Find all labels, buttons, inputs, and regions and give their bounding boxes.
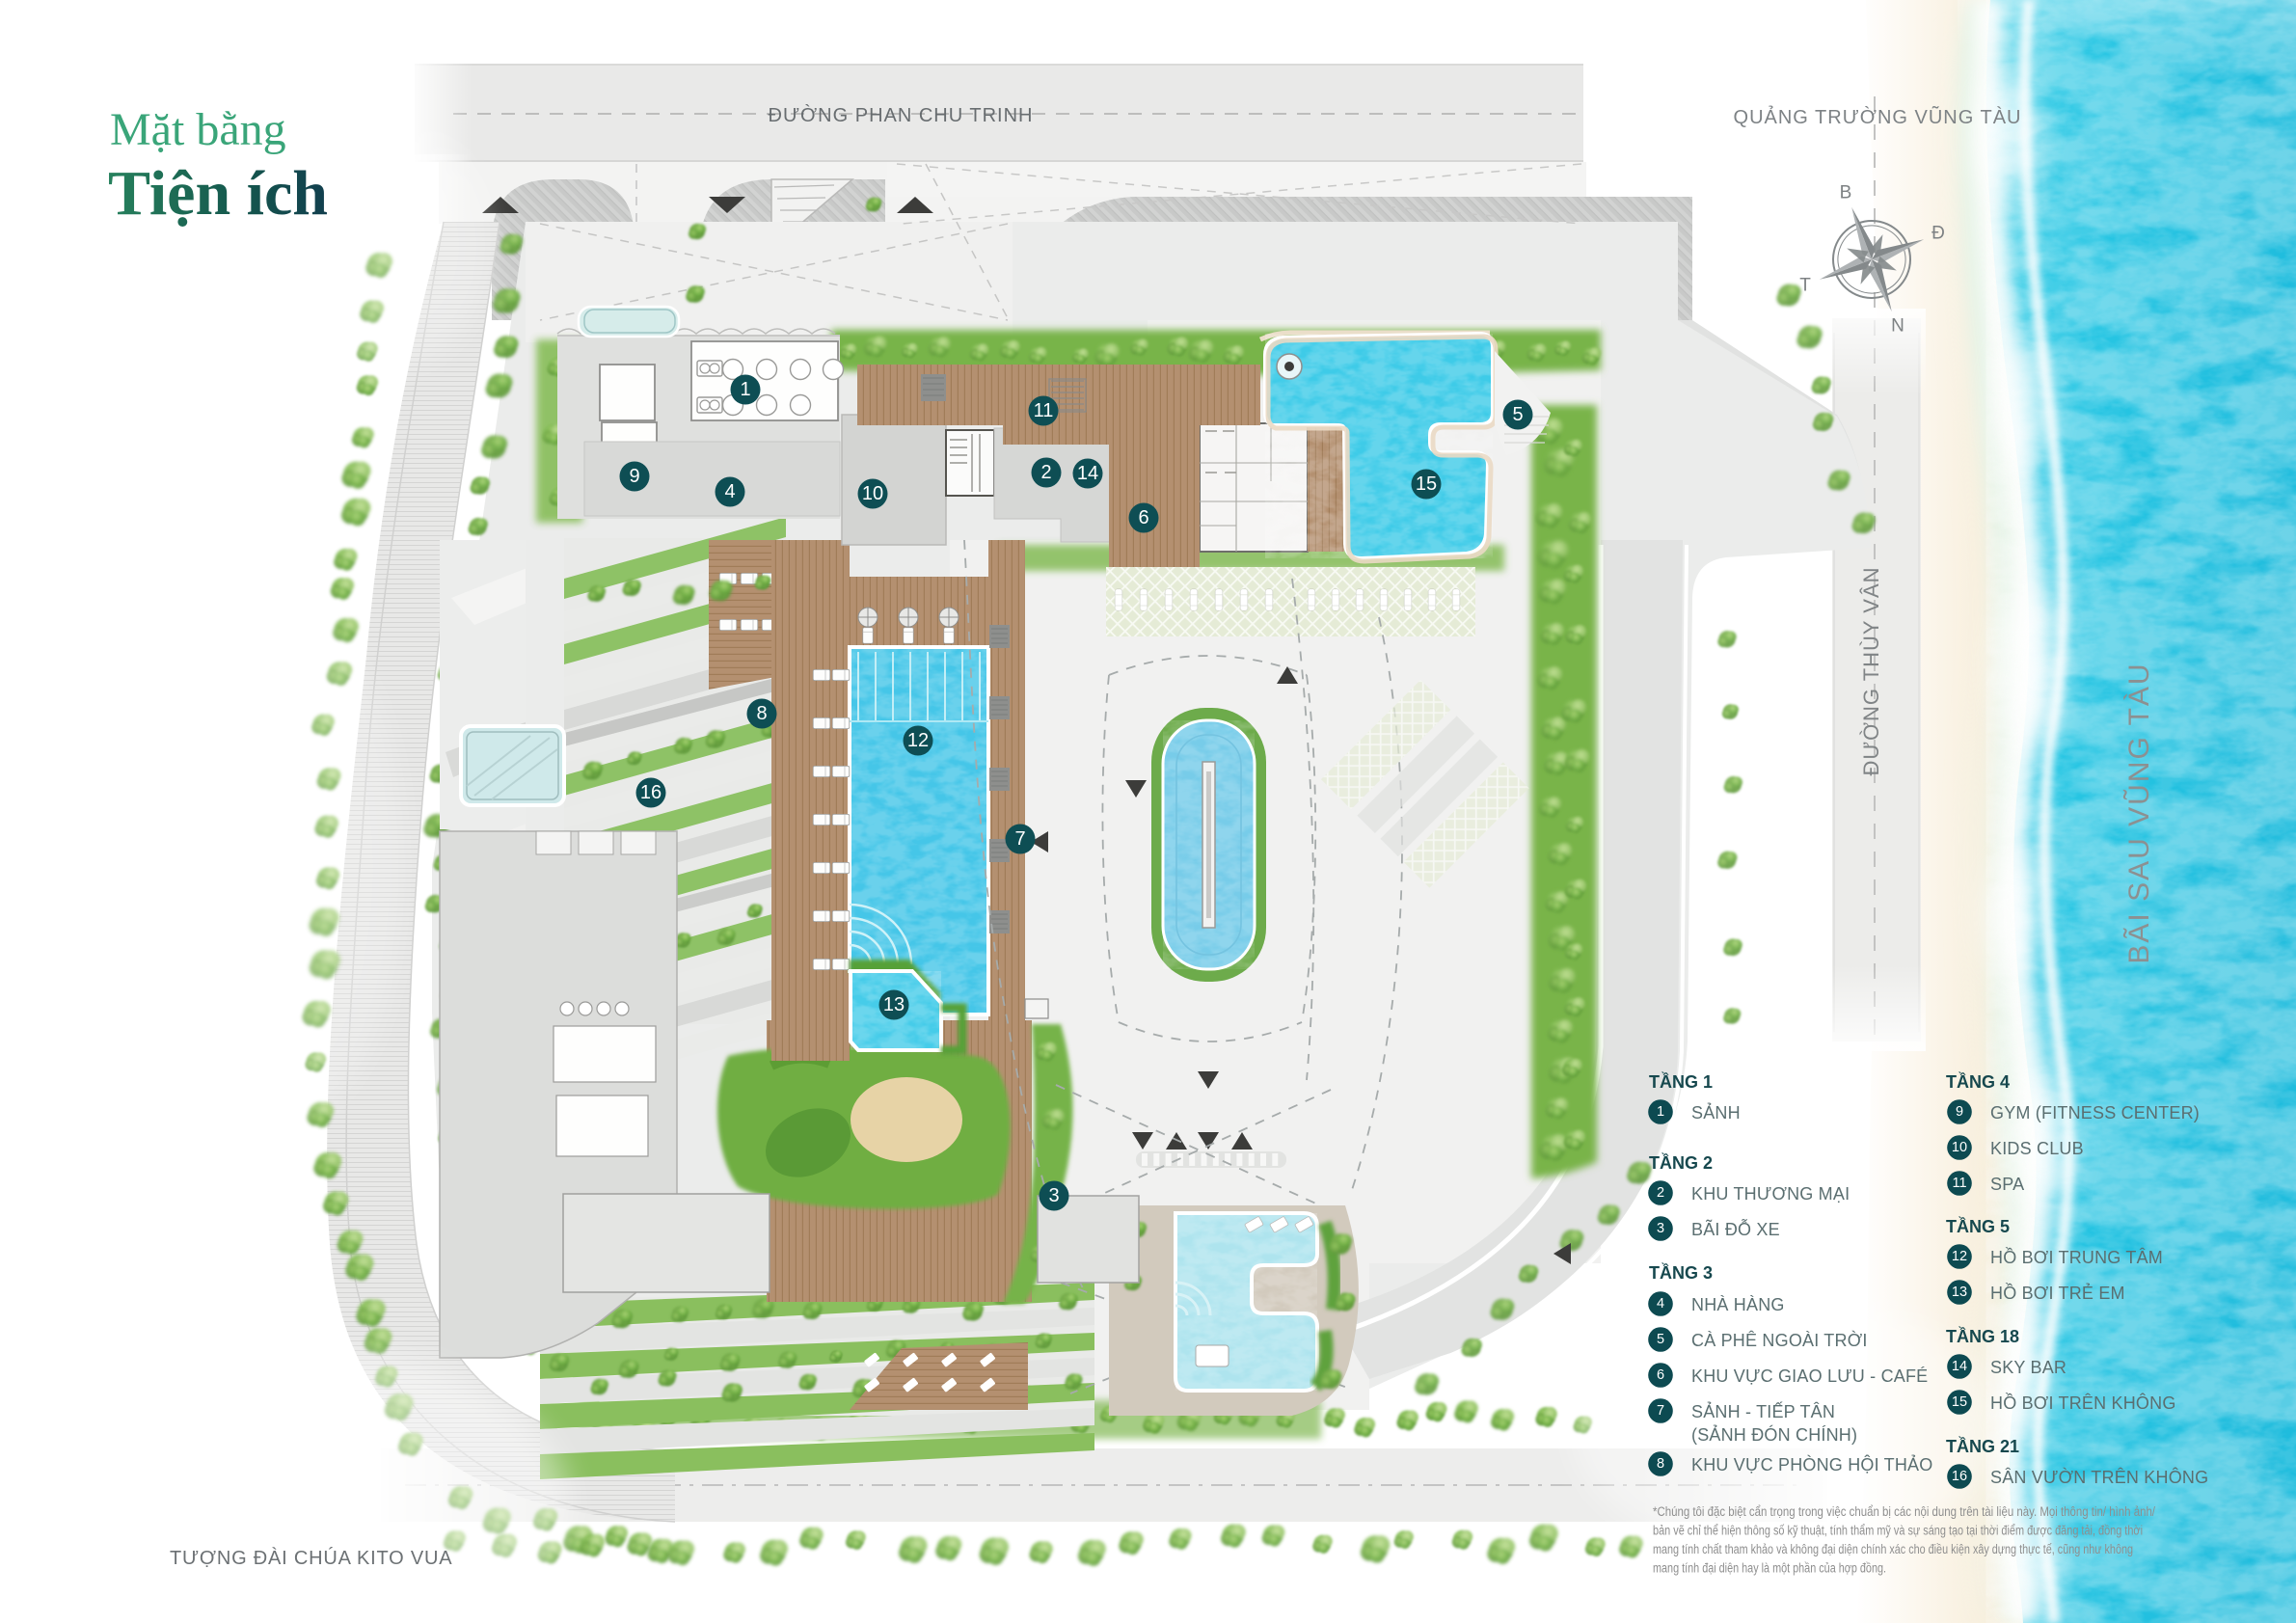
- svg-text:4: 4: [1657, 1296, 1664, 1312]
- svg-text:NHÀ HÀNG: NHÀ HÀNG: [1691, 1295, 1785, 1314]
- svg-text:CÀ PHÊ NGOÀI TRỜI: CÀ PHÊ NGOÀI TRỜI: [1691, 1330, 1868, 1350]
- svg-text:Tiện ích: Tiện ích: [108, 158, 328, 229]
- svg-text:Mặt bằng: Mặt bằng: [110, 104, 286, 155]
- svg-text:1: 1: [740, 379, 750, 400]
- svg-text:HỒ BƠI TRUNG TÂM: HỒ BƠI TRUNG TÂM: [1990, 1247, 2163, 1267]
- svg-text:Đ: Đ: [1931, 224, 1945, 244]
- svg-text:SKY BAR: SKY BAR: [1990, 1358, 2066, 1377]
- svg-text:10: 10: [1952, 1140, 1967, 1155]
- svg-text:13: 13: [883, 994, 905, 1015]
- svg-text:14: 14: [1077, 463, 1098, 484]
- svg-text:7: 7: [1014, 828, 1025, 850]
- svg-text:SÂN VƯỜN TRÊN KHÔNG: SÂN VƯỜN TRÊN KHÔNG: [1990, 1467, 2208, 1487]
- svg-text:5: 5: [1657, 1332, 1664, 1347]
- svg-text:TẦNG 3: TẦNG 3: [1649, 1262, 1713, 1283]
- svg-text:SPA: SPA: [1990, 1175, 2024, 1194]
- svg-text:11: 11: [1034, 400, 1054, 421]
- svg-text:ĐƯỜNG PHAN CHU TRINH: ĐƯỜNG PHAN CHU TRINH: [769, 104, 1034, 126]
- svg-text:HỒ BƠI TRÊN KHÔNG: HỒ BƠI TRÊN KHÔNG: [1990, 1393, 2176, 1413]
- svg-text:7: 7: [1657, 1403, 1664, 1419]
- svg-text:8: 8: [756, 703, 767, 724]
- svg-text:SẢNH: SẢNH: [1691, 1102, 1741, 1123]
- svg-text:B: B: [1840, 183, 1852, 203]
- svg-text:13: 13: [1952, 1285, 1967, 1300]
- svg-text:bản vẽ chỉ thể hiện thông số k: bản vẽ chỉ thể hiện thông số kỹ thuật, t…: [1653, 1524, 2143, 1538]
- svg-text:KHU VỰC PHÒNG HỘI THẢO: KHU VỰC PHÒNG HỘI THẢO: [1691, 1454, 1932, 1474]
- svg-text:15: 15: [1952, 1394, 1967, 1410]
- svg-text:mang tính đại diện hay là một: mang tính đại diện hay là một phần của h…: [1653, 1561, 1886, 1576]
- svg-text:TẦNG 4: TẦNG 4: [1946, 1071, 2010, 1092]
- svg-text:16: 16: [1952, 1469, 1967, 1484]
- svg-text:GYM (FITNESS CENTER): GYM (FITNESS CENTER): [1990, 1103, 2200, 1123]
- svg-text:2: 2: [1040, 462, 1051, 483]
- svg-text:TẦNG 2: TẦNG 2: [1649, 1152, 1713, 1173]
- svg-text:KHU VỰC GIAO LƯU - CAFÉ: KHU VỰC GIAO LƯU - CAFÉ: [1691, 1366, 1928, 1386]
- svg-text:TẦNG 1: TẦNG 1: [1649, 1071, 1713, 1092]
- svg-text:5: 5: [1512, 404, 1523, 425]
- svg-text:BÃI ĐỖ XE: BÃI ĐỖ XE: [1691, 1219, 1780, 1239]
- svg-text:SẢNH - TIẾP TÂN: SẢNH - TIẾP TÂN: [1691, 1401, 1835, 1421]
- svg-text:TẦNG 21: TẦNG 21: [1946, 1436, 2019, 1456]
- svg-text:9: 9: [629, 466, 639, 487]
- svg-text:T: T: [1799, 276, 1811, 296]
- svg-text:10: 10: [862, 483, 883, 504]
- svg-text:BÃI SAU VŨNG TÀU: BÃI SAU VŨNG TÀU: [2122, 662, 2155, 963]
- svg-text:12: 12: [907, 730, 929, 751]
- svg-text:ĐƯỜNG THÙY VÂN: ĐƯỜNG THÙY VÂN: [1859, 566, 1883, 775]
- svg-text:6: 6: [1138, 507, 1148, 528]
- svg-text:*Chúng tôi đặc biệt cẩn trọng: *Chúng tôi đặc biệt cẩn trọng trong việc…: [1653, 1504, 2155, 1519]
- svg-text:mang tính chất tham khảo và kh: mang tính chất tham khảo và không đại di…: [1653, 1542, 2133, 1556]
- svg-text:TẦNG 5: TẦNG 5: [1946, 1216, 2010, 1236]
- svg-text:11: 11: [1952, 1176, 1966, 1191]
- svg-text:HỒ BƠI TRẺ EM: HỒ BƠI TRẺ EM: [1990, 1283, 2125, 1303]
- svg-text:2: 2: [1657, 1185, 1664, 1201]
- svg-text:8: 8: [1657, 1456, 1664, 1472]
- svg-text:KIDS CLUB: KIDS CLUB: [1990, 1139, 2084, 1158]
- svg-text:15: 15: [1416, 473, 1437, 495]
- svg-text:(SẢNH ĐÓN CHÍNH): (SẢNH ĐÓN CHÍNH): [1691, 1424, 1857, 1445]
- svg-text:3: 3: [1048, 1185, 1059, 1206]
- svg-text:QUẢNG TRƯỜNG VŨNG TÀU: QUẢNG TRƯỜNG VŨNG TÀU: [1734, 105, 2022, 128]
- svg-text:3: 3: [1657, 1221, 1664, 1236]
- svg-text:N: N: [1891, 316, 1904, 337]
- svg-text:KHU THƯƠNG MẠI: KHU THƯƠNG MẠI: [1691, 1184, 1850, 1204]
- svg-text:TƯỢNG ĐÀI CHÚA KITO VUA: TƯỢNG ĐÀI CHÚA KITO VUA: [170, 1547, 452, 1569]
- svg-text:6: 6: [1657, 1367, 1664, 1383]
- svg-text:4: 4: [724, 481, 735, 502]
- svg-text:12: 12: [1952, 1249, 1967, 1264]
- svg-text:9: 9: [1956, 1104, 1963, 1120]
- svg-text:1: 1: [1657, 1104, 1664, 1120]
- svg-text:TẦNG 18: TẦNG 18: [1946, 1326, 2019, 1346]
- svg-text:14: 14: [1952, 1359, 1967, 1374]
- svg-text:16: 16: [640, 782, 662, 803]
